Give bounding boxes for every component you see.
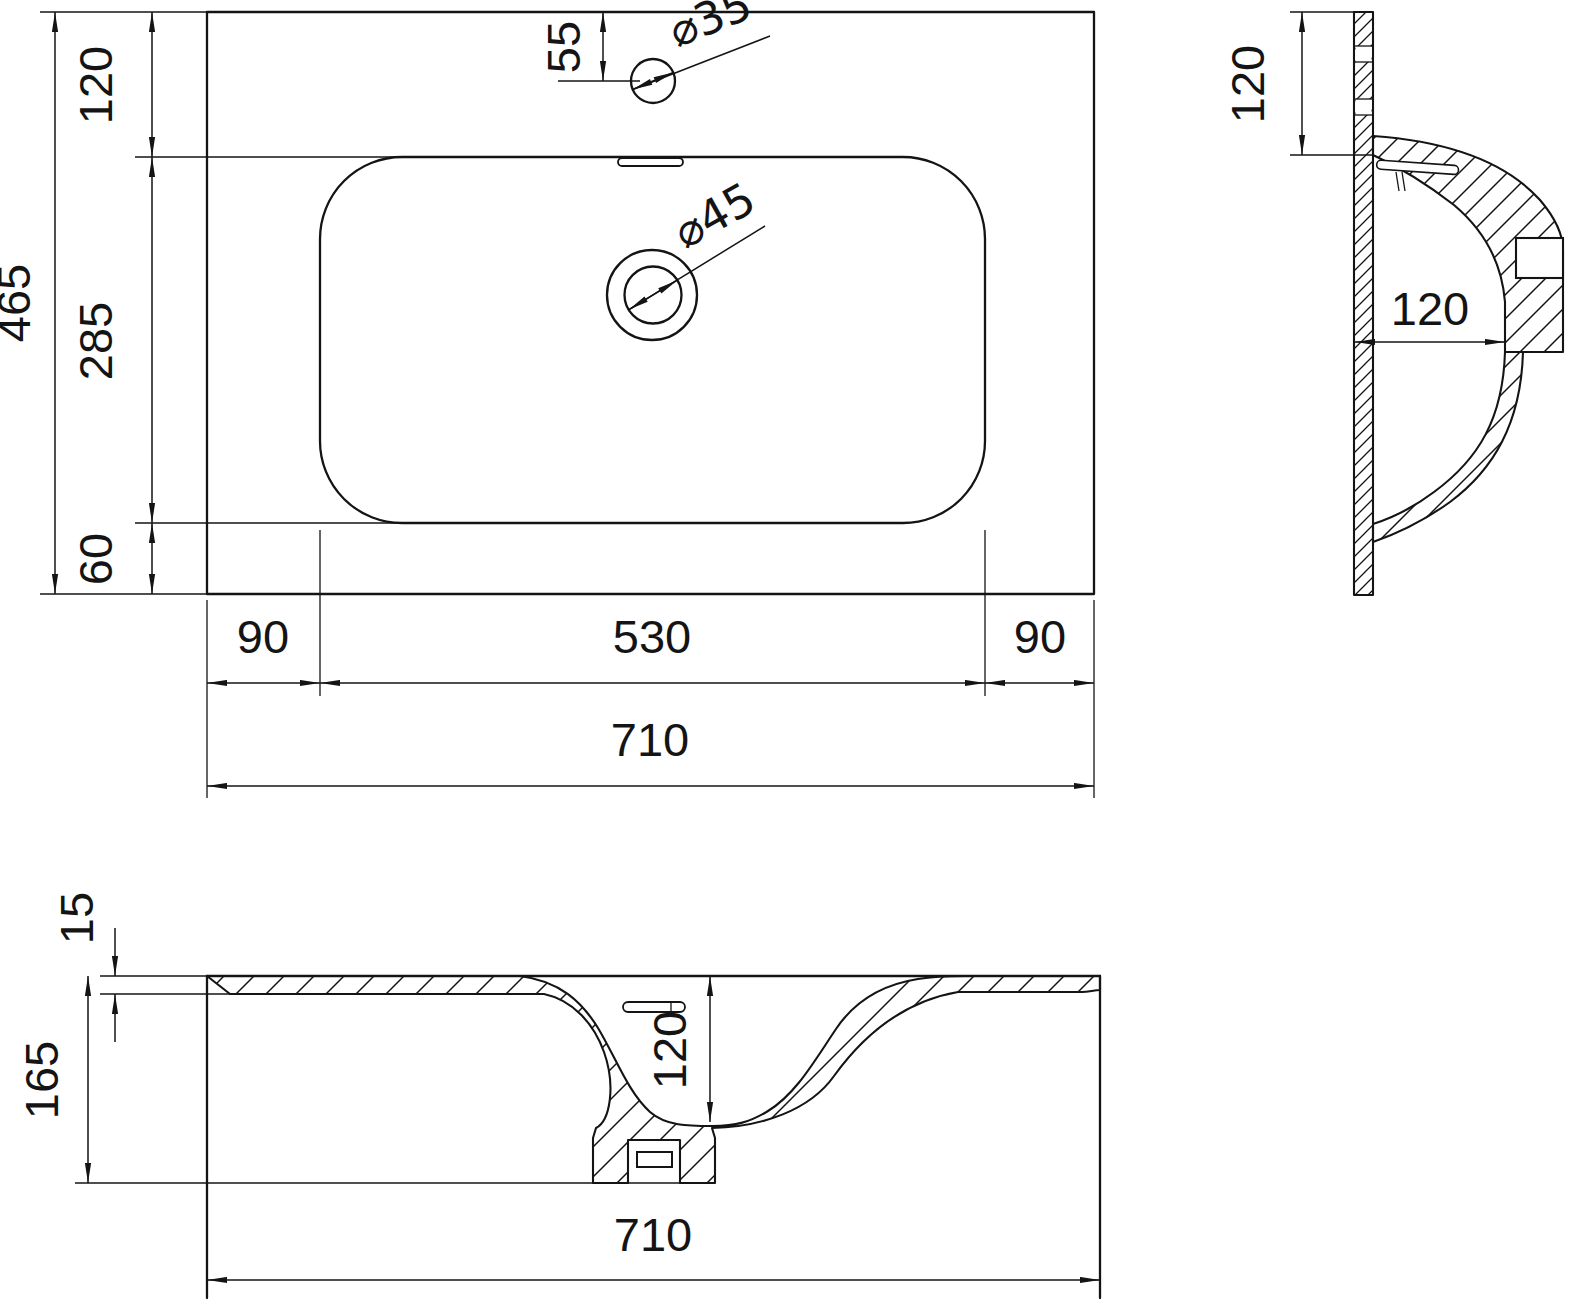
dim-right-margin-label: 90 bbox=[1014, 610, 1066, 663]
overflow-slot-top-view bbox=[618, 158, 683, 166]
front-section-view: 15 165 120 710 bbox=[15, 892, 1100, 1298]
dim-faucet-diameter-label: ⌀35 bbox=[661, 0, 759, 58]
mounting-notch-lower bbox=[1355, 99, 1373, 115]
dim-front-rim-thickness-label: 15 bbox=[50, 892, 103, 944]
top-view: 465 120 285 60 55 ⌀35 bbox=[0, 0, 1094, 798]
dim-rim-offset-bottom-label: 60 bbox=[69, 533, 122, 585]
technical-drawing-canvas: 465 120 285 60 55 ⌀35 bbox=[0, 0, 1574, 1308]
dim-side-rim-height-label: 120 bbox=[1221, 45, 1274, 123]
dim-total-width-label: 710 bbox=[611, 713, 689, 766]
dim-front-bowl-inner-height-label: 120 bbox=[643, 1011, 696, 1089]
dim-side-bowl-inner-depth: 120 bbox=[1355, 282, 1505, 342]
drain-outlet-front bbox=[637, 1152, 672, 1167]
dim-rim-offset-top-label: 120 bbox=[69, 46, 122, 124]
dim-bowl-depth-label: 285 bbox=[69, 302, 122, 380]
dim-left-margin-label: 90 bbox=[237, 610, 289, 663]
dim-bowl-depth: 285 bbox=[69, 157, 415, 523]
drain-bore bbox=[1516, 238, 1563, 278]
dim-faucet-offset-label: 55 bbox=[537, 21, 590, 73]
dim-faucet-offset: 55 bbox=[537, 12, 640, 81]
bowl-wall-lower-section bbox=[1373, 352, 1523, 542]
washbasin-technical-drawing: 465 120 285 60 55 ⌀35 bbox=[0, 0, 1574, 1308]
side-section-view: 120 120 bbox=[1221, 12, 1563, 595]
dim-front-bowl-inner-height: 120 bbox=[643, 976, 710, 1122]
dim-rim-offset-bottom: 60 bbox=[69, 523, 152, 594]
dim-front-rim-thickness: 15 bbox=[50, 892, 230, 1042]
dim-faucet-diameter: ⌀35 bbox=[633, 0, 770, 89]
mounting-notch-upper bbox=[1355, 46, 1373, 62]
dim-front-total-height-label: 165 bbox=[15, 1041, 68, 1119]
dim-bowl-width-label: 530 bbox=[613, 610, 691, 663]
dim-rim-offset-top: 120 bbox=[69, 12, 412, 157]
dim-side-bowl-inner-depth-label: 120 bbox=[1391, 282, 1469, 335]
dim-total-depth-label: 465 bbox=[0, 264, 40, 342]
dim-front-total-width: 710 bbox=[207, 1208, 1100, 1280]
dim-drain-diameter-label: ⌀45 bbox=[665, 172, 764, 259]
overflow-slot-front-view bbox=[623, 1002, 685, 1012]
dim-front-total-height: 165 bbox=[15, 976, 88, 1183]
countertop-outline bbox=[207, 12, 1094, 594]
dim-side-rim-height: 120 bbox=[1221, 12, 1374, 155]
dim-front-total-width-label: 710 bbox=[614, 1208, 692, 1261]
dim-bottom-row: 90 530 90 710 bbox=[207, 530, 1094, 798]
